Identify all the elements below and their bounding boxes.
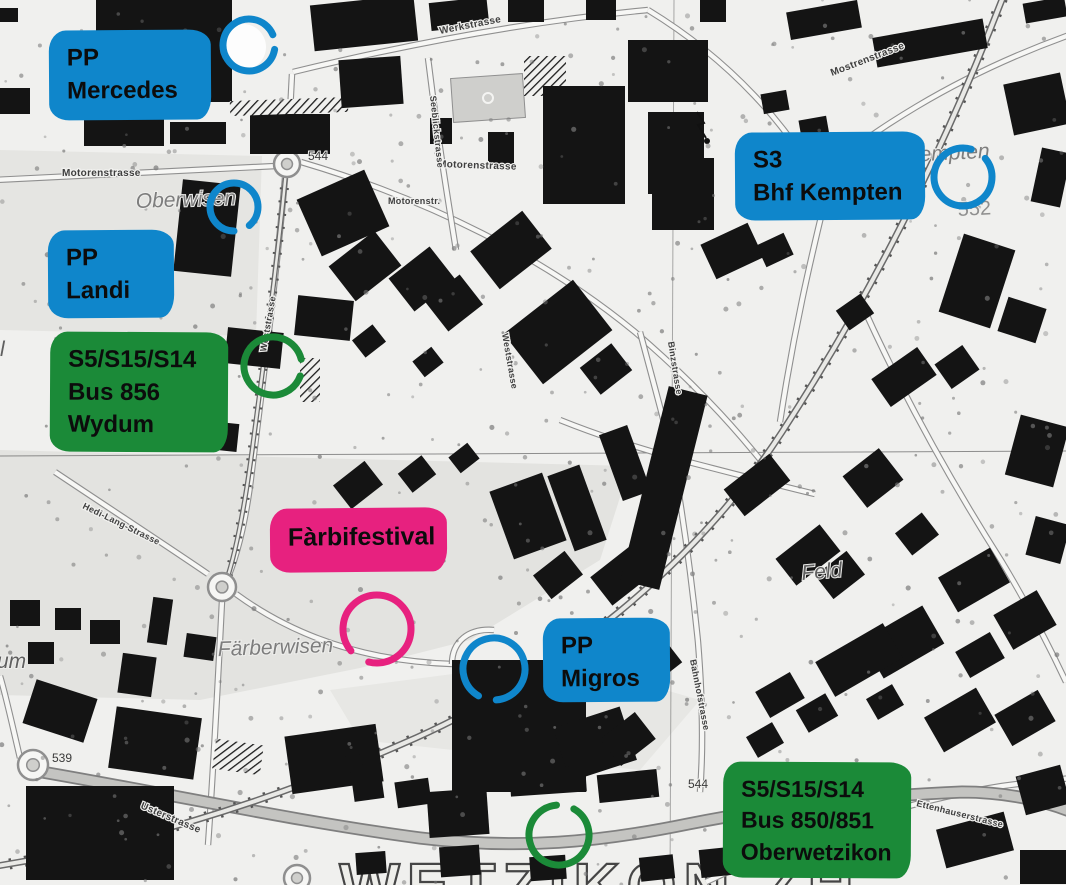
annotation-line: Wydum xyxy=(68,409,214,442)
place-label-fragment-l: l xyxy=(0,338,6,361)
annotated-map: WETZIKON ZH Werkstrasse Motorenstrasse M… xyxy=(0,0,1066,885)
lightning-symbol-dot xyxy=(704,138,710,144)
annotation-box-pp-landi: PP Landi xyxy=(48,230,175,319)
annotation-line: PP xyxy=(67,42,197,76)
annotation-box-bhf-kempten: S3 Bhf Kempten xyxy=(735,131,926,220)
street-label-motorenstrasse-west: Motorenstrasse xyxy=(62,168,141,179)
annotation-line: Migros xyxy=(561,662,656,695)
annotation-line: PP xyxy=(66,242,160,275)
annotation-line: Bus 850/851 xyxy=(741,805,897,837)
elevation-539: 539 xyxy=(52,751,72,765)
annotation-line: Fàrbifestival xyxy=(288,519,433,554)
annotation-line: Landi xyxy=(66,274,160,307)
annotation-line: S5/S15/S14 xyxy=(741,774,897,806)
annotation-line: Mercedes xyxy=(67,74,197,108)
street-label-bahnhofstrasse: Bahnhofstrasse xyxy=(688,658,712,731)
annotation-box-faerbifestival: Fàrbifestival xyxy=(270,507,448,573)
place-label-feld: Feld xyxy=(800,558,844,585)
annotation-line: Oberwetzikon xyxy=(741,836,897,868)
annotation-line: Bus 856 xyxy=(68,376,214,409)
street-label-motorenstrasse-center: Motorenstrasse xyxy=(438,159,517,173)
annotation-box-oberwetzikon: S5/S15/S14 Bus 850/851 Oberwetzikon xyxy=(723,762,912,879)
street-label-motorenstr: Motorenstr. xyxy=(388,196,440,206)
annotation-line: Bhf Kempten xyxy=(753,176,911,210)
elevation-544-bottom: 544 xyxy=(688,777,708,791)
annotation-line: S3 xyxy=(753,143,911,177)
annotation-box-pp-mercedes: PP Mercedes xyxy=(49,29,212,120)
elevation-544-top: 544 xyxy=(308,149,328,163)
annotation-box-pp-migros: PP Migros xyxy=(543,618,671,703)
annotation-box-wydum: S5/S15/S14 Bus 856 Wydum xyxy=(50,332,229,453)
annotation-line: PP xyxy=(561,630,656,663)
place-label-fragment-um: um xyxy=(0,650,26,673)
annotation-line: S5/S15/S14 xyxy=(68,344,214,377)
place-label-faerberwisen: Färberwisen xyxy=(217,634,333,661)
